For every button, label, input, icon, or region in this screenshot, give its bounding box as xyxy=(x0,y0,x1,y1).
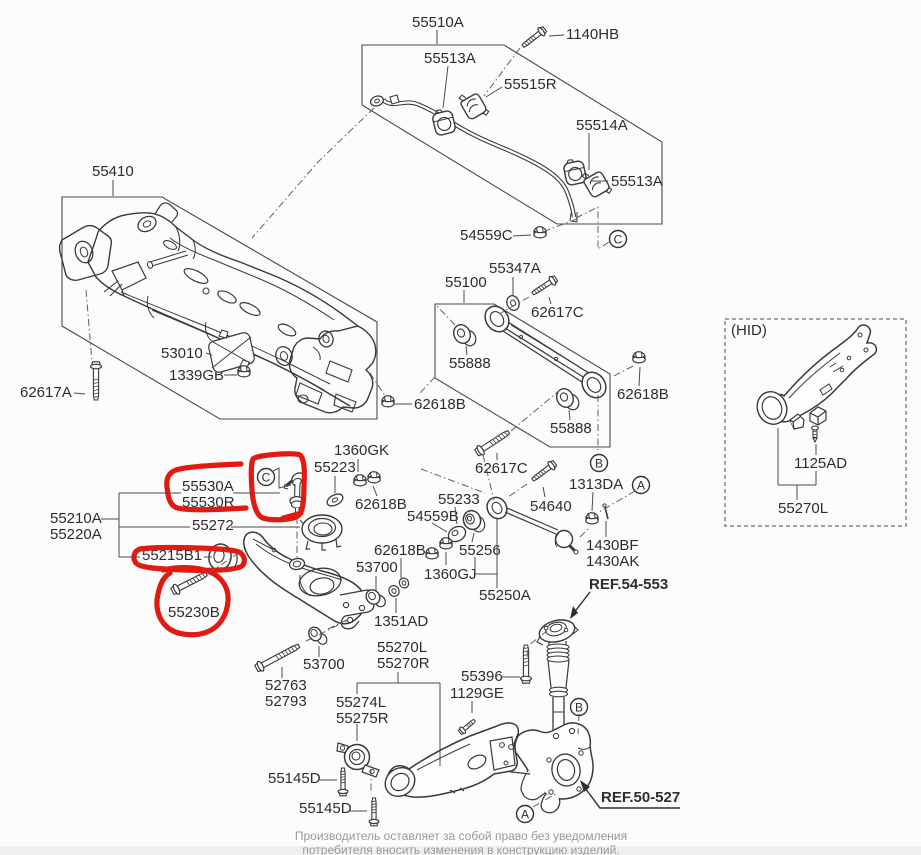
svg-text:C: C xyxy=(262,471,271,485)
svg-text:A: A xyxy=(521,808,529,822)
svg-text:55888: 55888 xyxy=(449,355,491,372)
svg-text:55145D: 55145D xyxy=(268,770,321,787)
svg-text:55145D: 55145D xyxy=(299,800,352,817)
svg-text:62618B: 62618B xyxy=(414,396,466,413)
svg-text:(HID): (HID) xyxy=(731,322,767,339)
svg-text:1313DA: 1313DA xyxy=(569,476,623,493)
svg-text:потребителя вносить изменения: потребителя вносить изменения в конструк… xyxy=(302,843,619,855)
svg-text:53010: 53010 xyxy=(161,345,203,362)
svg-text:55233: 55233 xyxy=(438,491,480,508)
svg-text:55100: 55100 xyxy=(445,274,487,291)
svg-text:55220A: 55220A xyxy=(50,526,102,543)
svg-text:55230B: 55230B xyxy=(168,604,220,621)
svg-text:55510A: 55510A xyxy=(412,14,464,31)
svg-text:1430AK: 1430AK xyxy=(586,553,639,570)
svg-text:52763: 52763 xyxy=(265,677,307,694)
svg-text:55514A: 55514A xyxy=(576,117,628,134)
svg-text:62617C: 62617C xyxy=(531,304,584,321)
svg-text:55270L: 55270L xyxy=(778,500,828,517)
svg-text:55275R: 55275R xyxy=(336,710,389,727)
svg-text:62618B: 62618B xyxy=(374,542,426,559)
svg-text:1129GE: 1129GE xyxy=(450,685,504,702)
svg-text:55210A: 55210A xyxy=(50,510,102,527)
svg-text:62617C: 62617C xyxy=(475,460,528,477)
svg-text:55515R: 55515R xyxy=(504,76,557,93)
svg-text:55270R: 55270R xyxy=(377,655,430,672)
svg-text:B: B xyxy=(575,701,583,715)
svg-text:1140HB: 1140HB xyxy=(566,26,619,43)
svg-text:55396: 55396 xyxy=(461,668,503,685)
svg-text:55270L: 55270L xyxy=(377,639,427,656)
svg-text:52793: 52793 xyxy=(265,693,307,710)
svg-text:55410: 55410 xyxy=(92,163,134,180)
svg-text:55250A: 55250A xyxy=(479,587,531,604)
svg-text:55513A: 55513A xyxy=(424,50,476,67)
svg-text:54559C: 54559C xyxy=(460,227,513,244)
svg-text:55223: 55223 xyxy=(314,459,356,476)
svg-text:Производитель оставляет за соб: Производитель оставляет за собой право б… xyxy=(295,829,627,843)
svg-text:62618B: 62618B xyxy=(617,386,669,403)
svg-text:C: C xyxy=(614,233,623,247)
svg-text:55347A: 55347A xyxy=(489,260,541,277)
svg-text:REF.54-553: REF.54-553 xyxy=(589,576,668,593)
svg-text:55530A: 55530A xyxy=(182,478,234,495)
svg-text:1360GJ: 1360GJ xyxy=(424,566,477,583)
svg-text:53700: 53700 xyxy=(303,656,345,673)
svg-text:55888: 55888 xyxy=(550,420,592,437)
svg-text:REF.50-527: REF.50-527 xyxy=(601,789,680,806)
svg-text:1351AD: 1351AD xyxy=(374,613,428,630)
svg-text:54640: 54640 xyxy=(530,498,572,515)
svg-text:1360GK: 1360GK xyxy=(334,442,389,459)
svg-text:55274L: 55274L xyxy=(336,694,386,711)
svg-text:A: A xyxy=(637,479,645,493)
svg-text:1125AD: 1125AD xyxy=(794,455,847,472)
svg-text:54559B: 54559B xyxy=(407,508,459,525)
svg-text:1430BF: 1430BF xyxy=(586,537,639,554)
svg-text:62618B: 62618B xyxy=(355,496,407,513)
svg-text:55256: 55256 xyxy=(459,542,501,559)
svg-text:B: B xyxy=(595,457,603,471)
svg-text:53700: 53700 xyxy=(356,559,398,576)
svg-text:62617A: 62617A xyxy=(20,384,72,401)
svg-text:55513A: 55513A xyxy=(611,173,663,190)
svg-text:55272: 55272 xyxy=(192,517,234,534)
